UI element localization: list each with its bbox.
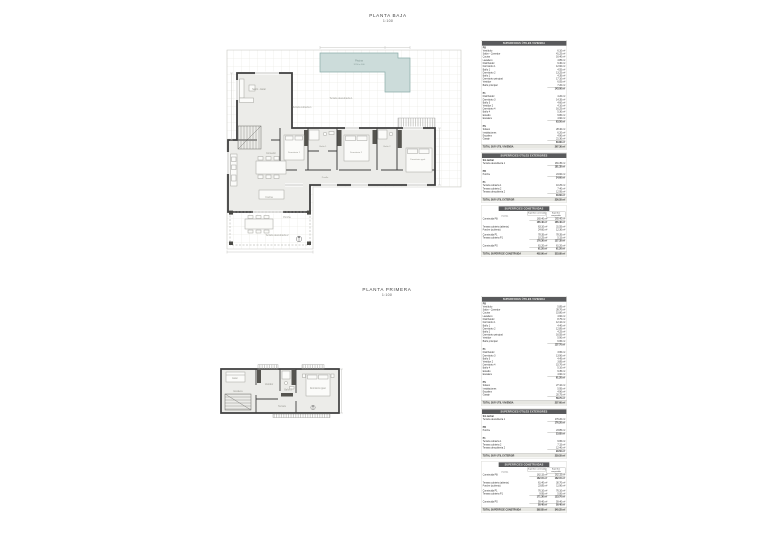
- svg-text:Terraza: Terraza: [278, 405, 286, 408]
- page-title: PLANTA PRIMERA: [337, 287, 438, 292]
- table-header: SUPERFICIES ÚTILES EXTERIORES: [482, 153, 566, 158]
- row-value: 59.40 m²: [547, 503, 565, 506]
- row-value: 143.00 m²: [547, 87, 565, 90]
- svg-text:Terraza descubierta 2: Terraza descubierta 2: [266, 234, 290, 237]
- row-label: TOTAL SUP. ÚTIL VIVIENDA: [483, 145, 548, 148]
- row-label: Porche: [483, 173, 548, 176]
- row-value: 229.55 m²: [547, 454, 565, 457]
- row-value: 353.95 m²: [547, 252, 565, 255]
- row-label: TOTAL SUP. ÚTIL VIVIENDA: [483, 401, 548, 404]
- row-value: 162.15 m²: [547, 477, 565, 480]
- table-superficies-utiles-vivienda: SUPERFICIES ÚTILES VIVIENDA PBVestíbulo5…: [481, 296, 567, 406]
- table-superficies-utiles-vivienda: SUPERFICIES ÚTILES VIVIENDA PBVestíbulo6…: [481, 40, 567, 150]
- dining-table: [256, 161, 286, 174]
- scale-label: 1:100: [338, 18, 439, 22]
- row-label: TOTAL SUPERFICIE CONSTRUIDA: [483, 508, 530, 511]
- svg-text:Salón - Estar: Salón - Estar: [252, 88, 266, 91]
- toilet: [389, 132, 393, 136]
- table-body: PBVestíbulo5.85 m²Salón - Comedor39.70 m…: [481, 302, 566, 404]
- table-row: TOTAL SUP. ÚTIL EXTERIOR236.55 m²: [481, 198, 566, 202]
- row-label: Terraza descubierta 2: [483, 446, 548, 449]
- svg-text:12.50 x 4.00: 12.50 x 4.00: [353, 64, 365, 66]
- svg-text:Comedor: Comedor: [266, 152, 276, 155]
- row-value: 392.85 m²: [529, 508, 547, 511]
- svg-text:Dormitorio 1: Dormitorio 1: [288, 151, 301, 154]
- table-body: PBVestíbulo6.10 m²Salón - Comedor41.25 m…: [481, 46, 566, 148]
- row-label: Escalera: [483, 373, 548, 376]
- table-row: ViviendaSuperficie construidaSuperficie …: [481, 468, 566, 473]
- terrace-band: [273, 414, 330, 418]
- svg-text:Dormitorio ppal.: Dormitorio ppal.: [310, 387, 327, 390]
- pergola-louvers: [302, 365, 324, 369]
- row-value: 236.55 m²: [547, 198, 565, 201]
- svg-text:Baño 1: Baño 1: [320, 145, 328, 148]
- row-value: 123.70 m²: [547, 495, 565, 498]
- row-label: Terraza cubierta P1: [483, 236, 530, 239]
- row-label: Porche (cubierto): [483, 229, 530, 232]
- row-value: 181.35 m²: [547, 165, 565, 168]
- row-value: Superficie computable: [547, 212, 566, 217]
- area-tables-ground: SUPERFICIES ÚTILES VIVIENDA PBVestíbulo6…: [481, 40, 567, 259]
- ground-floor-plan: Piscina 12.50 x 4.00 Terraza descubierta…: [225, 42, 465, 254]
- svg-text:Terraza cubierta 1: Terraza cubierta 1: [292, 106, 312, 109]
- row-value: 137.70 m²: [547, 343, 565, 346]
- svg-text:Piscina: Piscina: [355, 60, 363, 63]
- table-header: SUPERFICIES ÚTILES EXTERIORES: [482, 409, 566, 414]
- row-value: 61.20 m²: [547, 247, 565, 250]
- page-title: PLANTA BAJA: [338, 13, 439, 18]
- row-value: 24.60 m²: [529, 229, 547, 232]
- svg-text:Dormitorio 2: Dormitorio 2: [350, 151, 363, 154]
- table-header: SUPERFICIES ÚTILES VIVIENDA: [482, 41, 566, 46]
- row-value: 61.20 m²: [547, 376, 565, 379]
- table-row: 61.20 m²61.20 m²: [481, 247, 566, 250]
- sofa: [226, 372, 245, 382]
- row-label: Terraza descubierta 1: [483, 162, 548, 165]
- row-label: Porche: [483, 429, 548, 432]
- sofa: [240, 79, 245, 98]
- table-row: 29.50 m²: [481, 450, 566, 453]
- svg-text:Porche: Porche: [283, 216, 291, 219]
- row-value: 267.30 m²: [547, 145, 565, 148]
- row-label: Construida PS: [483, 500, 530, 503]
- table-row: ViviendaSuperficie construidaSuperficie …: [481, 212, 566, 217]
- row-value: 63.50 m²: [547, 120, 565, 123]
- row-label: Terraza descubierta 1: [483, 418, 548, 421]
- ground-floor-title-block: PLANTA BAJA 1:100: [338, 13, 439, 23]
- row-value: 58.70 m²: [547, 397, 565, 400]
- row-label: Terraza cubierta P1: [483, 492, 530, 495]
- row-value: 127.35 m²: [547, 239, 565, 242]
- stairs: [225, 394, 251, 410]
- table-body: ViviendaSuperficie construidaSuperficie …: [481, 212, 566, 255]
- row-label: TOTAL SUP. ÚTIL EXTERIOR: [483, 198, 548, 201]
- svg-text:Escalera: Escalera: [234, 390, 244, 393]
- stairs: [238, 126, 261, 149]
- svg-text:Dormitorio ppal.: Dormitorio ppal.: [410, 158, 426, 161]
- plan-sheet: PLANTA BAJA 1:100: [0, 0, 770, 535]
- first-floor-title-block: PLANTA PRIMERA 1:100: [337, 287, 438, 297]
- scale-label: 1:100: [337, 292, 438, 296]
- table-row: TOTAL SUP. ÚTIL EXTERIOR229.55 m²: [481, 454, 566, 458]
- row-label: TOTAL SUP. ÚTIL EXTERIOR: [483, 454, 548, 457]
- outdoor-table: [245, 219, 273, 229]
- row-value: 402.90 m²: [529, 252, 547, 255]
- table-row: TOTAL SUP. ÚTIL VIVIENDA267.30 m²: [481, 145, 566, 149]
- svg-text:Cocina: Cocina: [265, 196, 273, 199]
- table-body: ViviendaSuperficie construidaSuperficie …: [481, 468, 566, 511]
- row-value: 171.30 m²: [529, 495, 547, 498]
- table-row: Porche (cubierto)23.85 m²11.90 m²: [481, 485, 566, 488]
- row-value: 176.20 m²: [547, 421, 565, 424]
- row-value: 23.85 m²: [529, 485, 547, 488]
- row-label: Garaje: [483, 393, 548, 396]
- table-body: Sin techarTerraza descubierta 1176.20 m²…: [481, 415, 566, 458]
- row-label: Baño principal: [483, 84, 548, 87]
- row-value: 24.60 m²: [547, 176, 565, 179]
- row-value: 30.60 m²: [547, 194, 565, 197]
- row-value: 162.15 m²: [529, 477, 547, 480]
- row-label: TOTAL SUPERFICIE CONSTRUIDA: [483, 252, 530, 255]
- table-row: TOTAL SUP. ÚTIL VIVIENDA257.60 m²: [481, 401, 566, 405]
- table-header: SUPERFICIES CONSTRUIDAS: [499, 206, 550, 211]
- row-value: 257.60 m²: [547, 401, 565, 404]
- row-label: Construida PB: [483, 218, 530, 221]
- svg-text:Baño 3: Baño 3: [284, 389, 292, 392]
- row-value: Superficie construida: [527, 468, 546, 471]
- svg-text:Vestidor: Vestidor: [265, 383, 274, 386]
- shower: [282, 371, 290, 379]
- area-tables-first: SUPERFICIES ÚTILES VIVIENDA PBVestíbulo5…: [481, 296, 567, 515]
- first-floor-plan: Estar Escalera Vestidor Baño 3 Dormitori…: [218, 363, 343, 421]
- table-superficies-construidas: SUPERFICIES CONSTRUIDAS ViviendaSuperfic…: [481, 205, 567, 256]
- table-row: TOTAL SUPERFICIE CONSTRUIDA392.85 m²345.…: [481, 508, 566, 512]
- row-value: 23.85 m²: [547, 432, 565, 435]
- row-value: 11.90 m²: [547, 485, 565, 488]
- svg-text:Estar: Estar: [232, 377, 238, 380]
- shower: [309, 130, 319, 140]
- row-label: Porche (cubierto): [483, 485, 530, 488]
- row-value: 12.30 m²: [547, 229, 565, 232]
- svg-text:Terraza descubierta 1: Terraza descubierta 1: [330, 97, 354, 100]
- table-row: 58.70 m²: [481, 397, 566, 400]
- toilet: [284, 381, 287, 384]
- table-header: SUPERFICIES CONSTRUIDAS: [499, 462, 550, 467]
- table-row: TOTAL SUPERFICIE CONSTRUIDA402.90 m²353.…: [481, 252, 566, 256]
- table-body: Sin techarTerraza descubierta 1181.35 m²…: [481, 159, 566, 202]
- table-row: 60.80 m²: [481, 141, 566, 144]
- pergola-louvers: [258, 365, 278, 369]
- row-value: 165.40 m²: [529, 221, 547, 224]
- row-value: 29.50 m²: [547, 450, 565, 453]
- row-label: Terraza descubierta 2: [483, 190, 548, 193]
- row-value: Superficie construida: [527, 212, 546, 215]
- shower: [378, 130, 387, 139]
- table-superficies-utiles-exteriores: SUPERFICIES ÚTILES EXTERIORES Sin techar…: [481, 409, 567, 459]
- table-row: 30.60 m²: [481, 194, 566, 197]
- row-value: 61.20 m²: [529, 247, 547, 250]
- table-row: 59.40 m²59.40 m²: [481, 503, 566, 506]
- row-label: Garaje: [483, 137, 548, 140]
- table-superficies-utiles-exteriores: SUPERFICIES ÚTILES EXTERIORES Sin techar…: [481, 153, 567, 203]
- toilet: [323, 132, 327, 136]
- svg-text:Pasillo: Pasillo: [322, 177, 329, 179]
- table-header: SUPERFICIES ÚTILES VIVIENDA: [482, 297, 566, 302]
- sofa: [240, 98, 254, 103]
- row-label: Construida PB: [483, 474, 530, 477]
- row-value: 60.80 m²: [547, 141, 565, 144]
- sink: [329, 132, 334, 135]
- row-label: Construida PS: [483, 244, 530, 247]
- table-row: Porche (cubierto)24.60 m²12.30 m²: [481, 229, 566, 232]
- row-label: Escalera: [483, 117, 548, 120]
- svg-text:Baño 2: Baño 2: [384, 145, 392, 148]
- row-label: Baño principal: [483, 340, 548, 343]
- row-value: 165.40 m²: [547, 221, 565, 224]
- row-value: 345.25 m²: [547, 508, 565, 511]
- row-value: 59.40 m²: [529, 503, 547, 506]
- table-superficies-construidas: SUPERFICIES CONSTRUIDAS ViviendaSuperfic…: [481, 461, 567, 512]
- row-value: Superficie computable: [547, 468, 566, 473]
- row-value: 176.30 m²: [529, 239, 547, 242]
- dimension-lines: [340, 369, 343, 413]
